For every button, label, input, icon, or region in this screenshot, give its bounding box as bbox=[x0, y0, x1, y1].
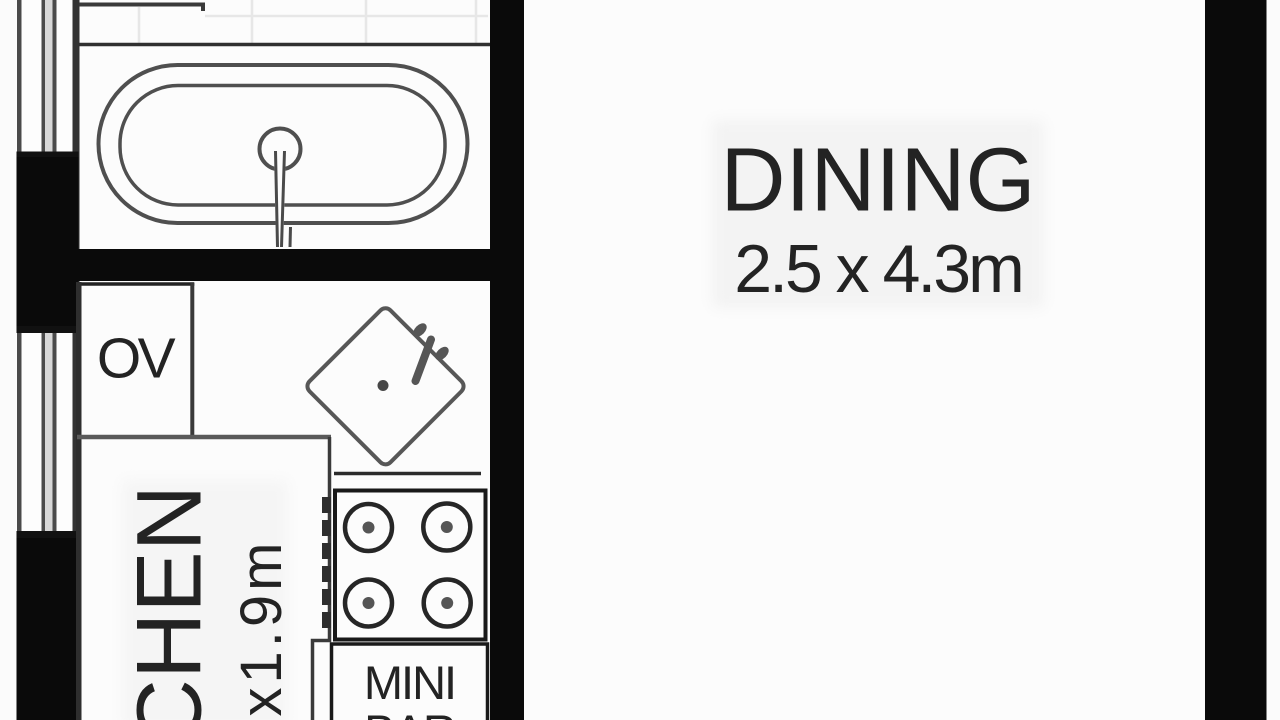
svg-text:BAR: BAR bbox=[364, 705, 455, 720]
svg-text:KITCHEN: KITCHEN bbox=[119, 485, 221, 720]
svg-text:MINI: MINI bbox=[364, 656, 455, 709]
svg-text:OV: OV bbox=[97, 327, 176, 391]
svg-text:2.5 x 4.3m: 2.5 x 4.3m bbox=[734, 231, 1022, 307]
svg-text:x1.9m: x1.9m bbox=[229, 539, 294, 717]
svg-text:DINING: DINING bbox=[721, 131, 1036, 231]
